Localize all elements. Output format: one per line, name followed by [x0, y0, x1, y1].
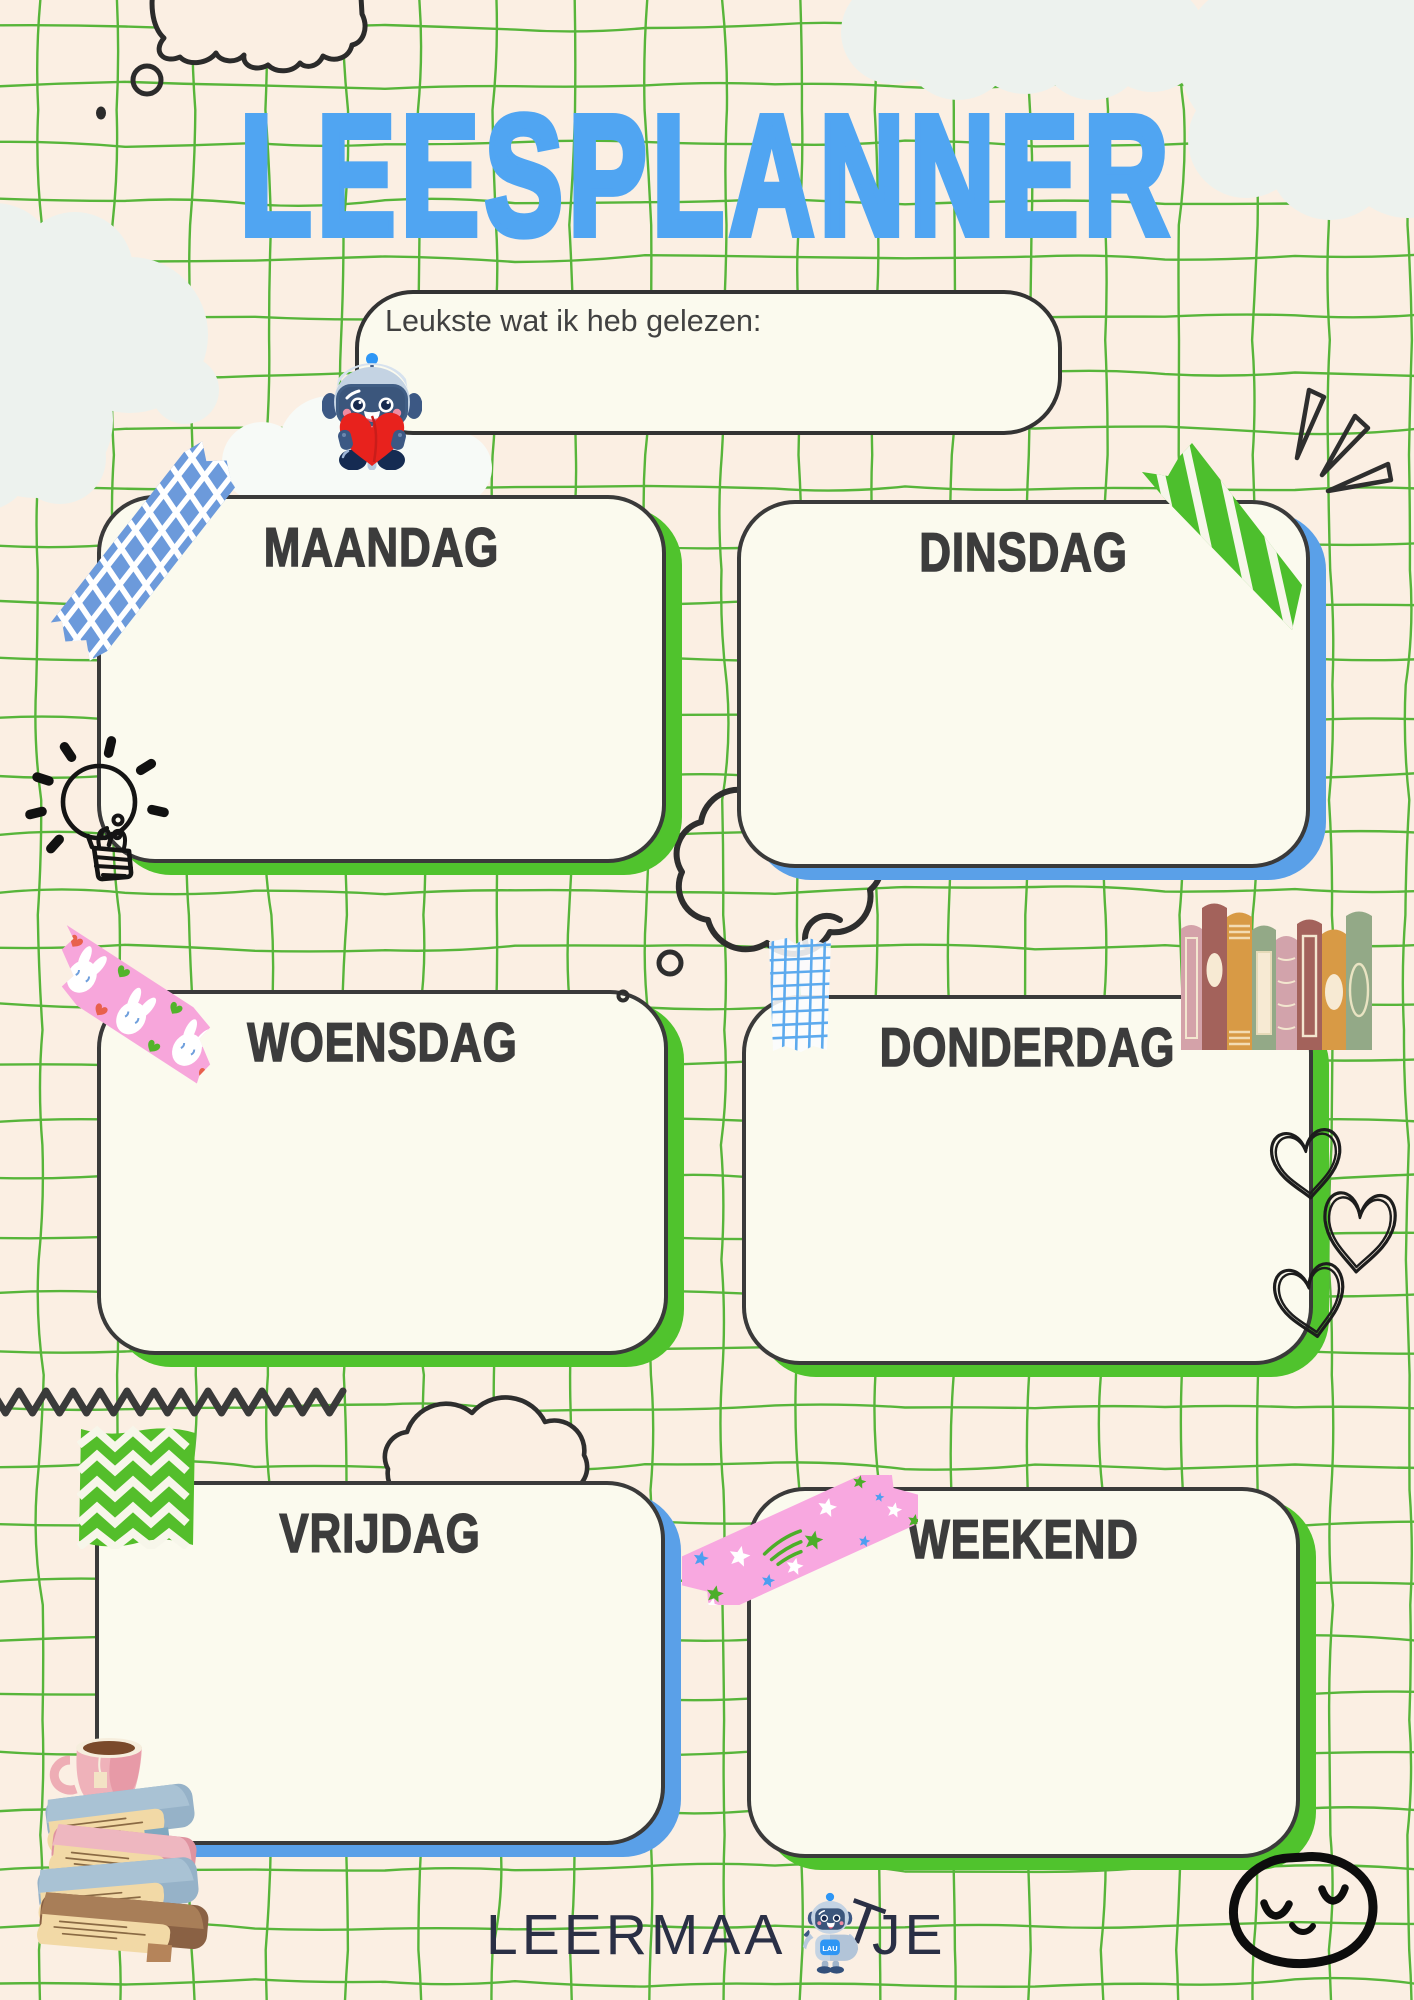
svg-text:LAU: LAU — [822, 1944, 837, 1953]
